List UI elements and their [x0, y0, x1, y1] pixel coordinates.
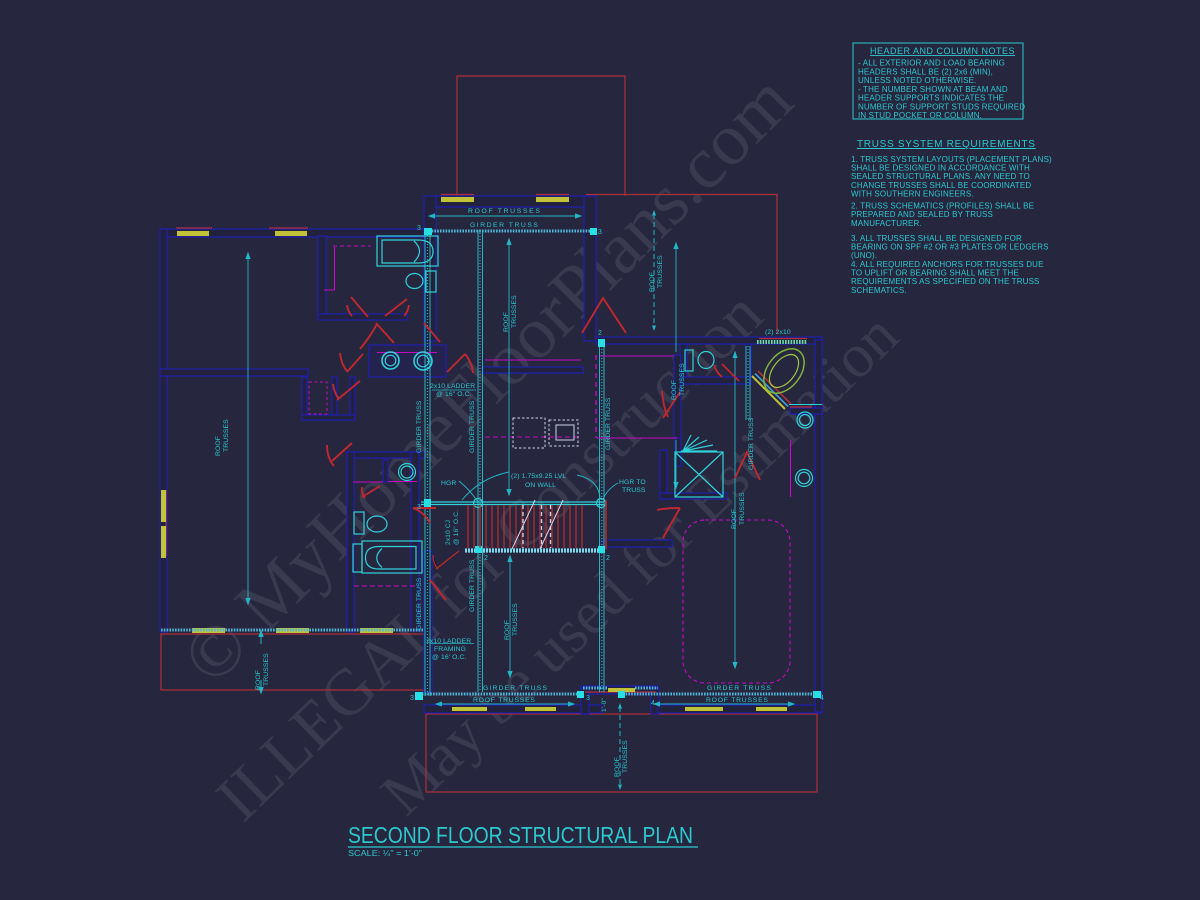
svg-text:IN STUD POCKET OR COLUMN.: IN STUD POCKET OR COLUMN. — [858, 111, 982, 120]
svg-text:GIRDER TRUSS: GIRDER TRUSS — [469, 559, 476, 612]
svg-text:BEARING ON SPF #2 OR #3 PLATES: BEARING ON SPF #2 OR #3 PLATES OR LEDGER… — [851, 243, 1049, 252]
svg-text:WITH SOUTHERN ENGINEERS.: WITH SOUTHERN ENGINEERS. — [851, 189, 974, 198]
svg-text:2: 2 — [606, 555, 610, 562]
svg-text:4: 4 — [820, 695, 824, 702]
svg-text:3: 3 — [410, 695, 414, 702]
svg-text:ON WALL: ON WALL — [525, 482, 556, 489]
svg-text:@ 16" O.C.: @ 16" O.C. — [453, 510, 460, 545]
svg-text:3: 3 — [417, 504, 421, 511]
svg-text:ROOF: ROOF — [503, 312, 510, 332]
svg-text:3: 3 — [417, 225, 421, 232]
svg-text:ROOF TRUSSES: ROOF TRUSSES — [468, 208, 540, 215]
svg-text:TRUSSES: TRUSSES — [511, 295, 518, 328]
svg-text:ROOF TRUSSES: ROOF TRUSSES — [473, 697, 535, 704]
svg-text:HGR TO: HGR TO — [619, 479, 646, 486]
svg-text:GIRDER TRUSS: GIRDER TRUSS — [748, 417, 755, 470]
svg-text:ROOF: ROOF — [731, 509, 738, 529]
svg-text:TRUSSES: TRUSSES — [622, 740, 629, 773]
svg-text:SCALE: ¼" = 1'-0": SCALE: ¼" = 1'-0" — [348, 849, 422, 858]
svg-text:- ALL EXTERIOR AND LOAD BEARIN: - ALL EXTERIOR AND LOAD BEARING — [858, 59, 1005, 68]
svg-text:HEADER SUPPORTS INDICATES THE: HEADER SUPPORTS INDICATES THE — [858, 94, 1004, 103]
svg-text:ROOF: ROOF — [614, 757, 621, 777]
svg-text:ROOF: ROOF — [504, 620, 511, 640]
svg-text:ROOF: ROOF — [215, 436, 222, 456]
svg-text:HEADERS SHALL BE (2) 2x6 (MIN): HEADERS SHALL BE (2) 2x6 (MIN), — [858, 67, 993, 76]
svg-text:MANUFACTURER.: MANUFACTURER. — [851, 219, 922, 228]
svg-text:TRUSSES: TRUSSES — [739, 492, 746, 525]
svg-text:FRAMING: FRAMING — [434, 646, 466, 653]
svg-text:(2) 2x10: (2) 2x10 — [765, 329, 791, 336]
svg-text:2: 2 — [598, 330, 602, 337]
svg-text:TRUSSES: TRUSSES — [657, 255, 664, 288]
svg-text:TRUSS SYSTEM REQUIREMENTS: TRUSS SYSTEM REQUIREMENTS — [857, 139, 1036, 150]
svg-text:GIRDER TRUSS: GIRDER TRUSS — [483, 685, 547, 692]
svg-text:TRUSSES: TRUSSES — [679, 363, 686, 396]
svg-text:HGR: HGR — [441, 480, 456, 487]
svg-text:HEADER AND COLUMN NOTES: HEADER AND COLUMN NOTES — [870, 46, 1015, 56]
svg-text:SECOND FLOOR STRUCTURAL PLAN: SECOND FLOOR STRUCTURAL PLAN — [348, 822, 693, 848]
svg-text:(2) 1.75x9.25 LVL: (2) 1.75x9.25 LVL — [511, 473, 566, 480]
svg-text:2: 2 — [484, 555, 488, 562]
svg-text:@ 16" O.C.: @ 16" O.C. — [436, 391, 472, 398]
svg-text:2x10 LADDER: 2x10 LADDER — [426, 638, 471, 645]
svg-text:@ 16' O.C.: @ 16' O.C. — [432, 654, 467, 661]
svg-text:GIRDER TRUSS: GIRDER TRUSS — [707, 685, 771, 692]
svg-text:1'-0": 1'-0" — [601, 698, 608, 712]
svg-text:4: 4 — [651, 700, 655, 707]
svg-text:ROOF: ROOF — [649, 272, 656, 292]
svg-text:3: 3 — [586, 695, 590, 702]
svg-text:TRUSSES: TRUSSES — [223, 419, 230, 452]
svg-text:ROOF: ROOF — [671, 380, 678, 400]
svg-text:UNLESS NOTED OTHERWISE.: UNLESS NOTED OTHERWISE. — [858, 76, 976, 85]
svg-text:GIRDER TRUSS: GIRDER TRUSS — [416, 400, 423, 453]
svg-text:TRUSSES: TRUSSES — [512, 603, 519, 636]
svg-text:2x10 CJ: 2x10 CJ — [445, 520, 452, 545]
svg-text:2x10 LADDER: 2x10 LADDER — [430, 383, 475, 390]
svg-text:(UNO).: (UNO). — [851, 251, 877, 260]
svg-text:- THE NUMBER SHOWN AT BEAM AND: - THE NUMBER SHOWN AT BEAM AND — [858, 85, 1008, 94]
svg-text:SCHEMATICS.: SCHEMATICS. — [851, 286, 907, 295]
svg-text:TRUSSES: TRUSSES — [263, 653, 270, 686]
svg-text:3: 3 — [598, 229, 602, 236]
svg-text:TRUSS: TRUSS — [622, 487, 646, 494]
svg-text:GIRDER TRUSS: GIRDER TRUSS — [416, 577, 423, 630]
svg-text:GIRDER TRUSS: GIRDER TRUSS — [469, 400, 476, 453]
svg-text:ROOF TRUSSES: ROOF TRUSSES — [706, 697, 768, 704]
svg-text:GIRDER TRUSS: GIRDER TRUSS — [605, 397, 612, 450]
